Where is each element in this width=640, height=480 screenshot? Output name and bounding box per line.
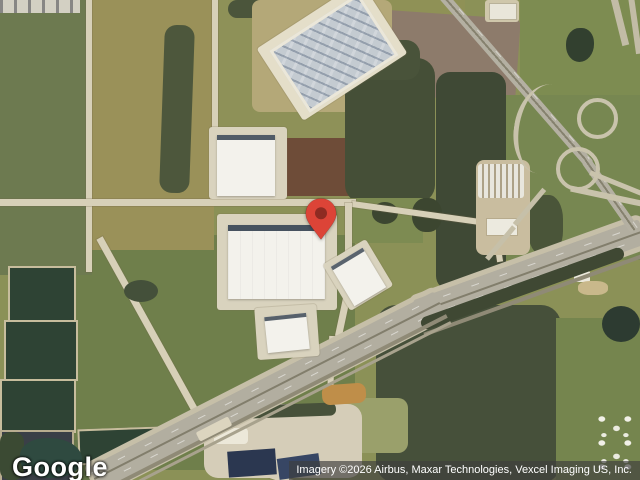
map-view: Google Imagery ©2026 Airbus, Maxar Techn…	[0, 0, 640, 480]
top-edge-structures	[0, 0, 80, 13]
location-pin-icon[interactable]	[303, 197, 339, 241]
interchange-loop-ramp-1	[577, 98, 618, 139]
industrial-building-navy-1	[227, 448, 277, 477]
facility-truck-rows	[478, 164, 524, 198]
tree-blob-3	[124, 280, 158, 302]
warehouse-upper	[217, 135, 275, 196]
tree-band-left	[159, 25, 195, 194]
crop-field-1	[8, 266, 76, 322]
field-left-olive	[92, 0, 214, 250]
google-logo[interactable]: Google	[12, 452, 108, 480]
warehouse-south	[264, 313, 310, 353]
crop-field-3	[0, 379, 76, 433]
rural-residential-area	[0, 0, 92, 275]
small-building-top	[489, 3, 517, 20]
crop-field-2	[4, 320, 78, 381]
attribution-text: Imagery ©2026 Airbus, Maxar Technologies…	[296, 464, 632, 476]
road-vertical-west	[86, 0, 92, 272]
attribution-bar: Imagery ©2026 Airbus, Maxar Technologies…	[289, 461, 640, 480]
driveway-right	[578, 281, 608, 295]
pond-right	[602, 306, 640, 342]
